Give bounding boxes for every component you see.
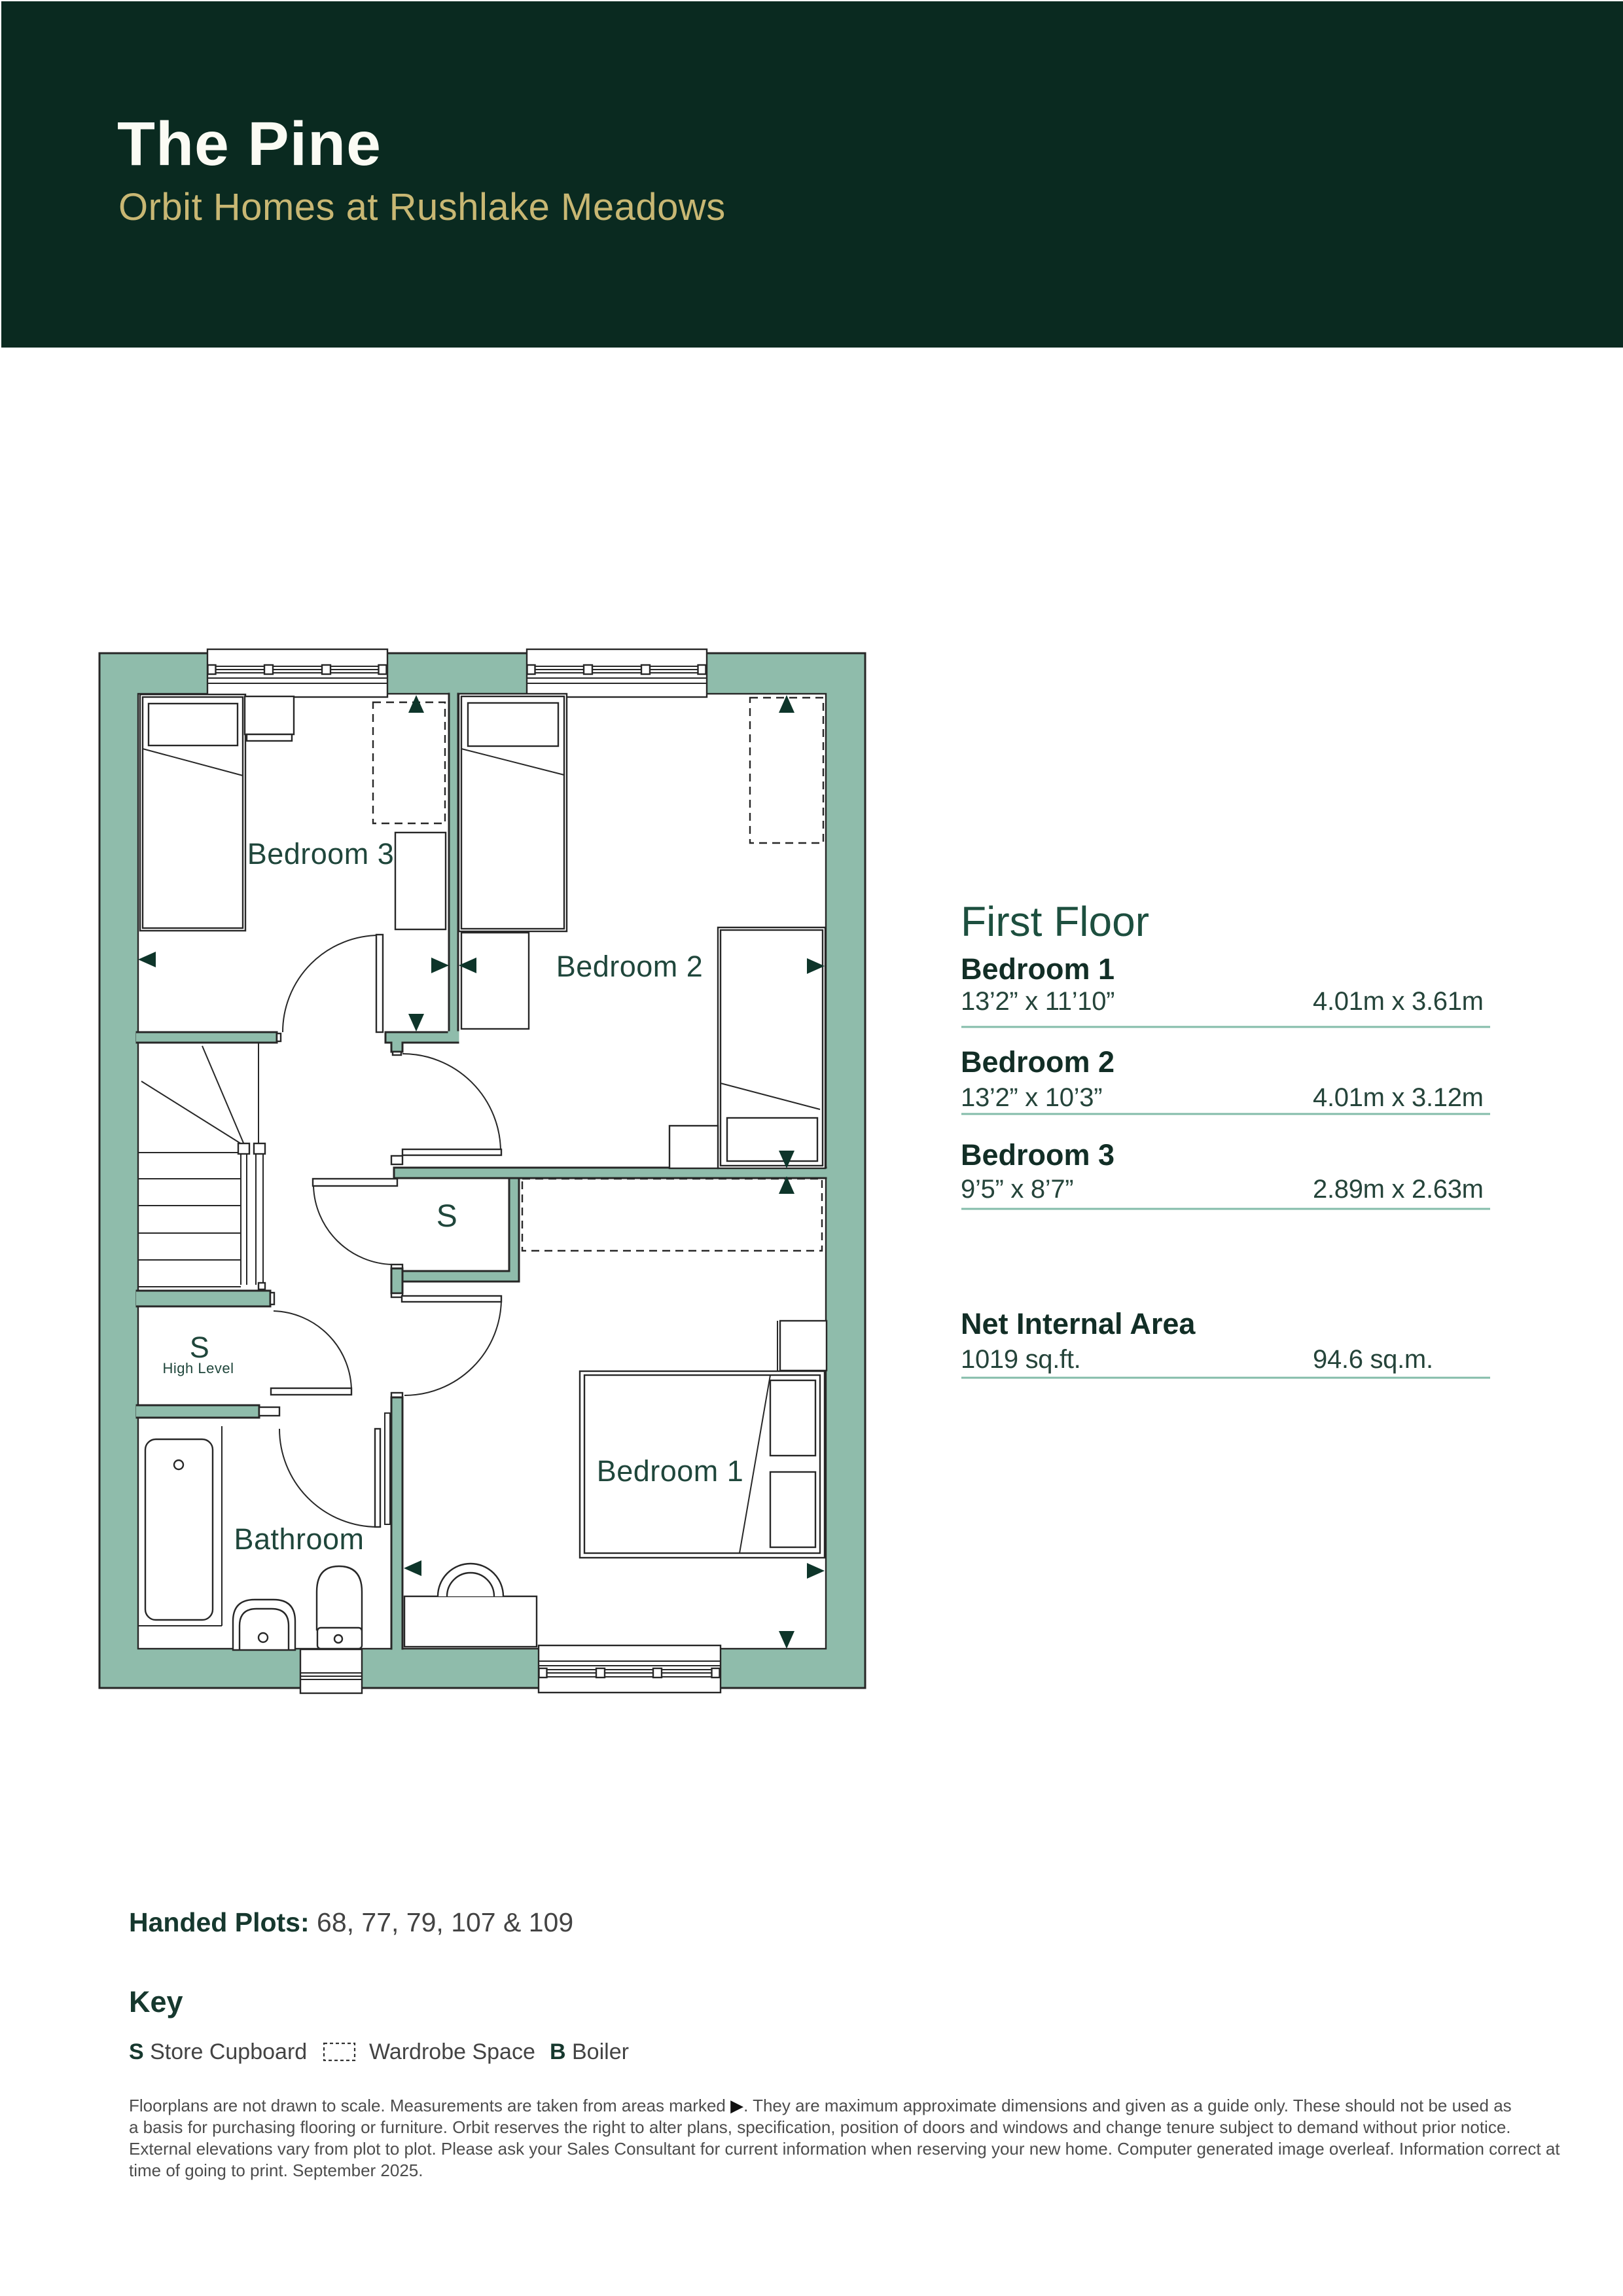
svg-text:Bathroom: Bathroom bbox=[234, 1522, 364, 1556]
svg-text:4.01m x 3.12m: 4.01m x 3.12m bbox=[1313, 1083, 1484, 1112]
svg-text:Key: Key bbox=[129, 1985, 183, 2018]
svg-text:2.89m x 2.63m: 2.89m x 2.63m bbox=[1313, 1175, 1484, 1204]
svg-text:Bedroom 1: Bedroom 1 bbox=[961, 952, 1115, 986]
svg-text:High Level: High Level bbox=[163, 1360, 234, 1376]
svg-text:Floorplans are not drawn to sc: Floorplans are not drawn to scale. Measu… bbox=[129, 2096, 1512, 2115]
svg-text:The Pine: The Pine bbox=[117, 109, 382, 179]
svg-text:Wardrobe Space: Wardrobe Space bbox=[369, 2039, 535, 2064]
svg-text:Handed Plots: 68, 77, 79, 107: Handed Plots: 68, 77, 79, 107 & 109 bbox=[129, 1907, 573, 1937]
svg-text:time of going to print. Septem: time of going to print. September 2025. bbox=[129, 2161, 423, 2180]
svg-text:Bedroom 2: Bedroom 2 bbox=[556, 950, 704, 983]
svg-text:13’2” x 11’10”: 13’2” x 11’10” bbox=[961, 987, 1115, 1016]
svg-text:B Boiler: B Boiler bbox=[550, 2039, 629, 2064]
svg-text:Bedroom 1: Bedroom 1 bbox=[597, 1454, 744, 1488]
svg-text:a basis for purchasing floorin: a basis for purchasing flooring or furni… bbox=[129, 2117, 1511, 2137]
svg-text:4.01m x 3.61m: 4.01m x 3.61m bbox=[1313, 987, 1484, 1016]
svg-text:1019 sq.ft.: 1019 sq.ft. bbox=[961, 1345, 1081, 1374]
svg-text:Orbit Homes at Rushlake Meadow: Orbit Homes at Rushlake Meadows bbox=[118, 186, 726, 228]
svg-text:Net Internal Area: Net Internal Area bbox=[961, 1307, 1196, 1340]
svg-text:94.6 sq.m.: 94.6 sq.m. bbox=[1313, 1345, 1433, 1374]
svg-text:13’2” x 10’3”: 13’2” x 10’3” bbox=[961, 1083, 1102, 1112]
svg-text:S: S bbox=[437, 1199, 458, 1234]
svg-text:9’5” x 8’7”: 9’5” x 8’7” bbox=[961, 1175, 1073, 1204]
svg-text:External elevations vary from: External elevations vary from plot to pl… bbox=[129, 2139, 1560, 2159]
svg-text:Bedroom 3: Bedroom 3 bbox=[961, 1138, 1115, 1172]
svg-text:Bedroom 2: Bedroom 2 bbox=[961, 1045, 1115, 1079]
svg-text:First Floor: First Floor bbox=[961, 898, 1149, 945]
svg-text:S Store Cupboard: S Store Cupboard bbox=[129, 2039, 307, 2064]
svg-text:Bedroom 3: Bedroom 3 bbox=[247, 837, 395, 870]
svg-text:S: S bbox=[190, 1331, 210, 1364]
